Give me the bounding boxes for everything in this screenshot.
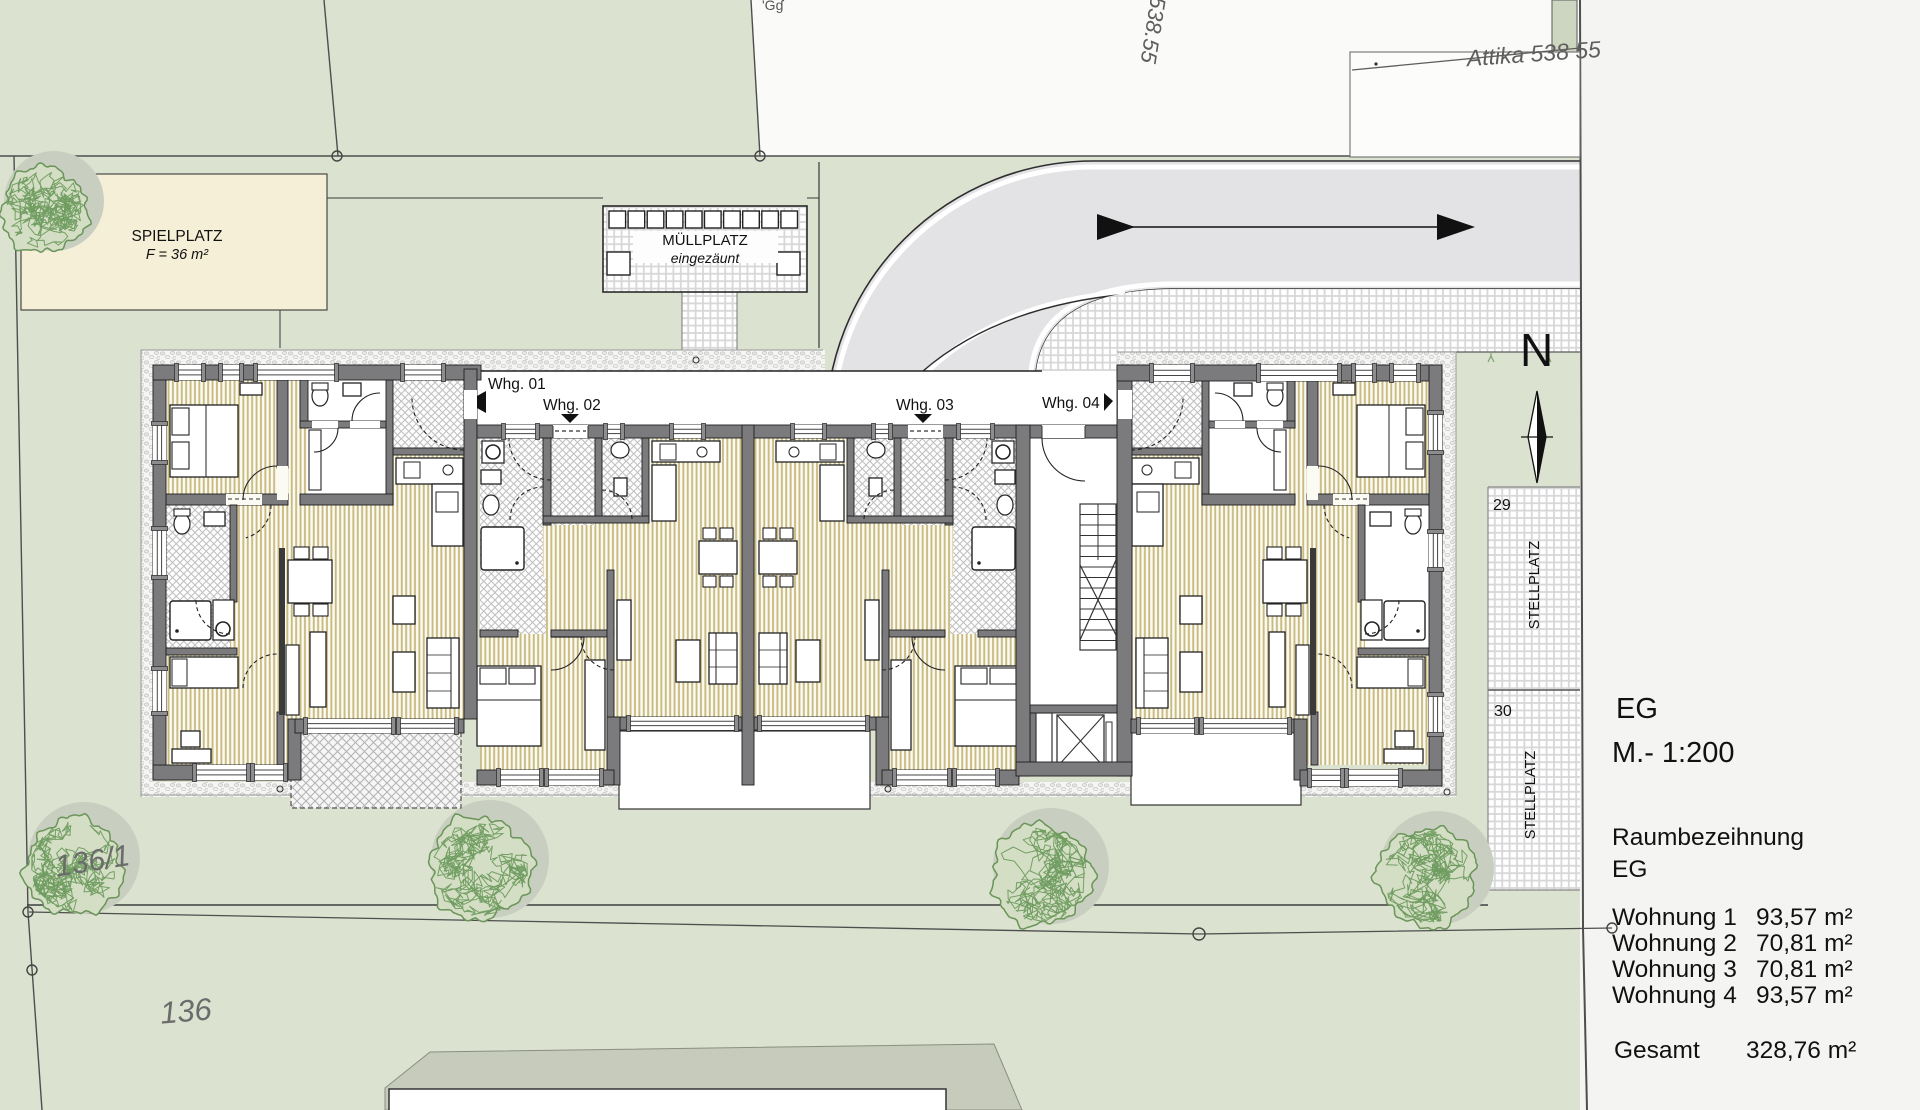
svg-text:30: 30 xyxy=(1494,703,1512,720)
svg-text:Raumbezeihnung: Raumbezeihnung xyxy=(1612,824,1804,851)
svg-text:93,57 m²: 93,57 m² xyxy=(1756,904,1853,931)
svg-text:STELLPLATZ: STELLPLATZ xyxy=(1523,751,1539,840)
svg-text:136: 136 xyxy=(159,991,214,1030)
svg-text:Wohnung 4: Wohnung 4 xyxy=(1612,982,1737,1009)
svg-text:29: 29 xyxy=(1493,497,1511,514)
svg-text:MÜLLPLATZ: MÜLLPLATZ xyxy=(662,231,748,249)
svg-text:328,76 m²: 328,76 m² xyxy=(1746,1037,1856,1064)
svg-text:eingezäunt: eingezäunt xyxy=(671,250,741,266)
svg-text:70,81 m²: 70,81 m² xyxy=(1756,956,1853,983)
svg-text:M.- 1:200: M.- 1:200 xyxy=(1612,737,1735,769)
svg-text:STELLPLATZ: STELLPLATZ xyxy=(1527,541,1543,630)
svg-text:Whg. 04: Whg. 04 xyxy=(1042,395,1100,412)
svg-text:'Gɠ: 'Gɠ xyxy=(762,0,785,13)
svg-text:93,57 m²: 93,57 m² xyxy=(1756,982,1853,1009)
svg-text:SPIELPLATZ: SPIELPLATZ xyxy=(131,228,222,245)
svg-text:Whg. 01: Whg. 01 xyxy=(488,376,546,393)
svg-text:EG: EG xyxy=(1612,856,1647,883)
svg-text:Wohnung 1: Wohnung 1 xyxy=(1612,904,1737,931)
svg-text:EG: EG xyxy=(1616,693,1658,725)
svg-text:Gesamt: Gesamt xyxy=(1614,1037,1700,1064)
svg-text:N: N xyxy=(1520,324,1553,376)
svg-text:Wohnung 2: Wohnung 2 xyxy=(1612,930,1737,957)
svg-text:70,81 m²: 70,81 m² xyxy=(1756,930,1853,957)
svg-text:Wohnung 3: Wohnung 3 xyxy=(1612,956,1737,983)
svg-text:Whg. 03: Whg. 03 xyxy=(896,397,954,414)
svg-text:F = 36 m²: F = 36 m² xyxy=(146,247,209,263)
svg-text:Whg. 02: Whg. 02 xyxy=(543,397,601,414)
